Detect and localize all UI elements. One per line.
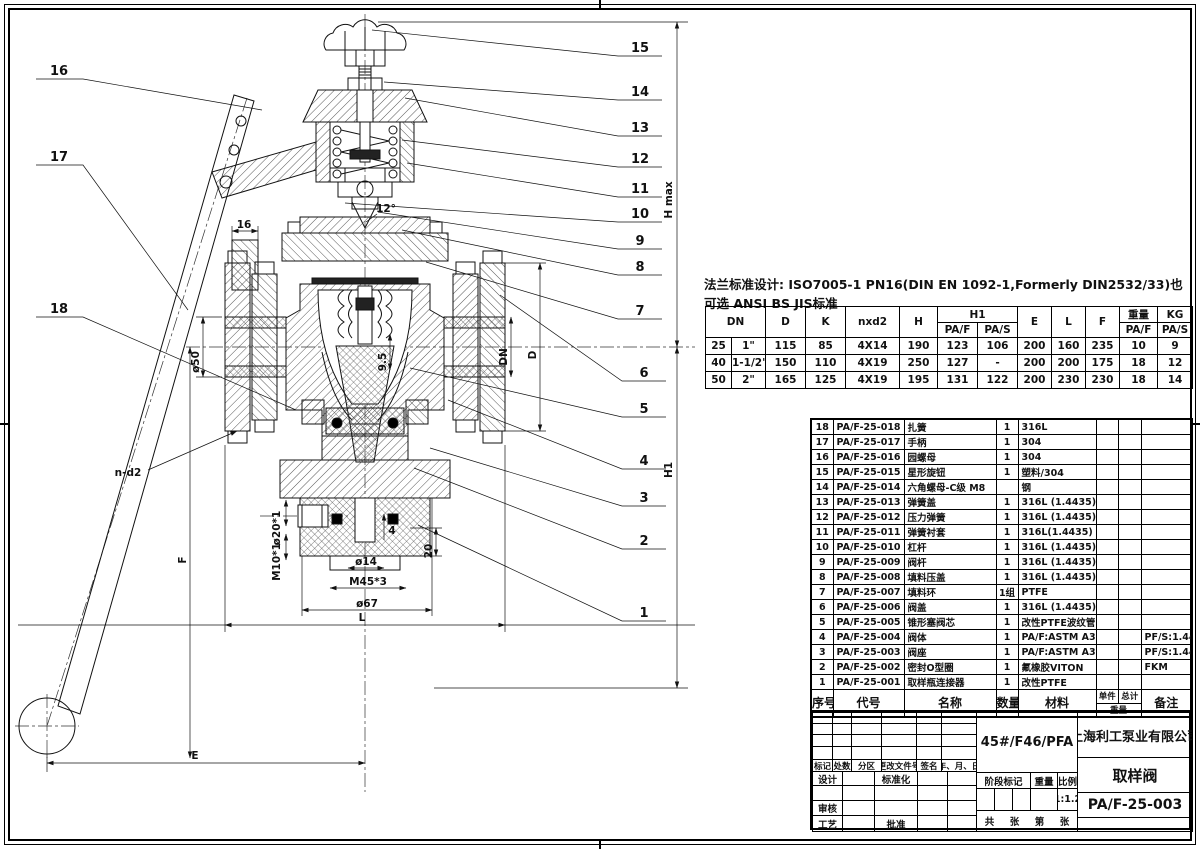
- bom-cell: 2: [811, 660, 833, 675]
- bom-row: 11PA/F-25-011弹簧衬套1316L(1.4435): [811, 525, 1192, 540]
- dim-header-w-paf: PA/F: [1120, 323, 1158, 338]
- dim-table-cell: 1-1/2": [732, 355, 766, 372]
- bom-row: 18PA/F-25-018扎簧1316L: [811, 419, 1192, 435]
- tb-label-process: 工艺: [812, 815, 843, 832]
- bom-cell: PA/F:ASTM A395/PFA: [1018, 645, 1096, 660]
- dim-table-cell: 127: [938, 355, 978, 372]
- bom-cell: 填料环: [904, 585, 996, 600]
- bom-cell: 阀体: [904, 630, 996, 645]
- bom-row: 17PA/F-25-017手柄1304: [811, 435, 1192, 450]
- dim-table-row: 251"115854X14190123106200160235109: [706, 338, 1193, 355]
- bom-cell: [1096, 525, 1118, 540]
- bom-cell: [1118, 450, 1141, 465]
- bom-cell: [1096, 435, 1118, 450]
- bom-cell: 1: [996, 645, 1018, 660]
- callout-5: 5: [639, 402, 648, 417]
- bom-cell: 316L (1.4435): [1018, 600, 1096, 615]
- dim-header-nxd2: nxd2: [846, 307, 900, 338]
- bom-cell: [1141, 525, 1192, 540]
- bom-cell: 1组: [996, 585, 1018, 600]
- bom-cell: PA/F-25-015: [833, 465, 904, 480]
- bom-cell: [1096, 600, 1118, 615]
- tb-label-weight: 重量: [1030, 772, 1058, 789]
- tb-label-design: 设计: [812, 771, 843, 786]
- dim-table-cell: 150: [766, 355, 806, 372]
- tb-product-name: 取样阀: [1077, 757, 1193, 793]
- bom-cell: [1141, 419, 1192, 435]
- bom-cell: 星形旋钮: [904, 465, 996, 480]
- bom-cell: 8: [811, 570, 833, 585]
- bom-cell: 1: [996, 465, 1018, 480]
- bom-cell: 11: [811, 525, 833, 540]
- bom-row: 2PA/F-25-002密封O型圈1氟橡胶VITONFKM: [811, 660, 1192, 675]
- bom-cell: [1096, 645, 1118, 660]
- bom-cell: [1118, 465, 1141, 480]
- bom-cell: 压力弹簧: [904, 510, 996, 525]
- bom-cell: 1: [996, 630, 1018, 645]
- tb-label-total-sheets: 共: [985, 814, 995, 828]
- bom-table: 18PA/F-25-018扎簧1316L17PA/F-25-017手柄13041…: [810, 418, 1193, 718]
- bom-cell: [1141, 510, 1192, 525]
- dim-dia20: ø20*1: [271, 511, 283, 546]
- callout-3: 3: [639, 491, 648, 506]
- bom-cell: [1118, 525, 1141, 540]
- dim-table-cell: 235: [1086, 338, 1120, 355]
- dim-table-cell: 131: [938, 372, 978, 389]
- dim-table-row: 401-1/2"1501104X19250127-2002001751812: [706, 355, 1193, 372]
- spring-cover: [303, 90, 427, 122]
- bom-cell: 阀盖: [904, 600, 996, 615]
- bom-cell: PA/F-25-010: [833, 540, 904, 555]
- tb-label-stage-mark: 阶段标记: [976, 772, 1031, 789]
- bom-cell: 316L (1.4435): [1018, 540, 1096, 555]
- bom-cell: PA/F-25-001: [833, 675, 904, 690]
- tb-company-name: 上海利工泵业有限公司: [1077, 712, 1193, 758]
- bom-cell: [1141, 450, 1192, 465]
- tb-material-spec: 45#/F46/PFA: [976, 712, 1078, 773]
- bom-cell: 阀座: [904, 645, 996, 660]
- dim-table-cell: 123: [938, 338, 978, 355]
- bom-cell: 14: [811, 480, 833, 495]
- dim-table-cell: 200: [1018, 338, 1052, 355]
- bom-cell: 1: [811, 675, 833, 690]
- bom-cell: [996, 480, 1018, 495]
- dim-dia50: ø50: [190, 351, 202, 373]
- bom-cell: PA/F:ASTM A395/PFA: [1018, 630, 1096, 645]
- bom-cell: [1096, 675, 1118, 690]
- dim-table-cell: 10: [1120, 338, 1158, 355]
- bom-cell: 园螺母: [904, 450, 996, 465]
- bom-cell: [1096, 510, 1118, 525]
- bom-cell: 1: [996, 615, 1018, 630]
- spring-housing: [316, 122, 414, 182]
- bom-cell: 15: [811, 465, 833, 480]
- bom-cell: 弹簧衬套: [904, 525, 996, 540]
- bom-cell: PA/F-25-013: [833, 495, 904, 510]
- bom-cell: 304: [1018, 435, 1096, 450]
- bellows-clamp: [312, 278, 418, 284]
- bom-cell: [1118, 600, 1141, 615]
- bom-cell: [1118, 540, 1141, 555]
- bom-cell: [1096, 615, 1118, 630]
- dim-table-cell: 115: [766, 338, 806, 355]
- dim-table-cell: 50: [706, 372, 732, 389]
- bom-cell: 钢: [1018, 480, 1096, 495]
- bom-cell: PTFE: [1018, 585, 1096, 600]
- tb-label-approve: 批准: [874, 815, 918, 832]
- bom-cell: 锥形塞阀芯: [904, 615, 996, 630]
- bom-cell: 六角螺母-C级 M8: [904, 480, 996, 495]
- bom-row: 8PA/F-25-008填料压盖1316L (1.4435): [811, 570, 1192, 585]
- callout-4: 4: [639, 454, 648, 469]
- bom-cell: 1: [996, 495, 1018, 510]
- dim-table-cell: 18: [1120, 355, 1158, 372]
- dim-table-cell: 12: [1158, 355, 1193, 372]
- bom-cell: 316L: [1018, 419, 1096, 435]
- bom-cell: 密封O型圈: [904, 660, 996, 675]
- dim-16: 16: [237, 219, 252, 231]
- bom-cell: PA/F-25-016: [833, 450, 904, 465]
- tb-label-sheet-no: 第: [1035, 814, 1045, 828]
- dim-dn: DN: [498, 348, 510, 366]
- dim-f: F: [177, 556, 189, 563]
- bom-row: 7PA/F-25-007填料环1组PTFE: [811, 585, 1192, 600]
- bom-cell: [1118, 435, 1141, 450]
- bom-cell: 1: [996, 435, 1018, 450]
- dim-table-cell: 1": [732, 338, 766, 355]
- bom-cell: PA/F-25-011: [833, 525, 904, 540]
- callout-13: 13: [631, 121, 649, 136]
- callout-7: 7: [635, 304, 644, 319]
- bom-cell: [1096, 495, 1118, 510]
- bom-cell: [1141, 480, 1192, 495]
- tb-label-scale: 比例: [1057, 772, 1078, 789]
- dim-table-cell: 18: [1120, 372, 1158, 389]
- tb-label-sheet2: 张: [1060, 814, 1070, 828]
- drawing-sheet: H max H1 E F L n-d2 ø50 16 12° 9.5 DN D …: [0, 0, 1200, 849]
- bom-cell: 304: [1018, 450, 1096, 465]
- dim-table-cell: 122: [978, 372, 1018, 389]
- bom-row: 10PA/F-25-010杠杆1316L (1.4435): [811, 540, 1192, 555]
- bom-row: 13PA/F-25-013弹簧盖1316L (1.4435): [811, 495, 1192, 510]
- tb-label-sheet: 张: [1010, 814, 1020, 828]
- tb-drawing-number: PA/F-25-003: [1077, 792, 1193, 818]
- bom-cell: PA/F-25-003: [833, 645, 904, 660]
- dim-header-h: H: [900, 307, 938, 338]
- bom-cell: [1096, 540, 1118, 555]
- dim-header-kg: KG: [1158, 307, 1193, 323]
- tb-label-review: 审核: [812, 800, 843, 816]
- bom-cell: [1096, 450, 1118, 465]
- callout-17: 17: [50, 150, 68, 165]
- bom-cell: 316L (1.4435): [1018, 570, 1096, 585]
- bom-cell: 316L (1.4435): [1018, 495, 1096, 510]
- bom-cell: PA/F-25-002: [833, 660, 904, 675]
- bom-cell: 1: [996, 570, 1018, 585]
- dim-table-cell: 200: [1018, 372, 1052, 389]
- bom-row: 6PA/F-25-006阀盖1316L (1.4435): [811, 600, 1192, 615]
- dim-20: 20: [423, 544, 435, 559]
- bom-cell: 1: [996, 675, 1018, 690]
- bom-cell: [1141, 615, 1192, 630]
- bom-cell: PA/F-25-014: [833, 480, 904, 495]
- callout-1: 1: [639, 606, 648, 621]
- dim-table-cell: 4X14: [846, 338, 900, 355]
- bom-row: 3PA/F-25-003阀座1PA/F:ASTM A395/PFAPF/S:1.…: [811, 645, 1192, 660]
- bom-cell: [1118, 630, 1141, 645]
- dim-d: D: [527, 350, 539, 359]
- bom-cell: [1096, 465, 1118, 480]
- dim-table-cell: 195: [900, 372, 938, 389]
- dim-table-cell: 106: [978, 338, 1018, 355]
- bom-cell: [1141, 435, 1192, 450]
- bom-cell: PA/F-25-017: [833, 435, 904, 450]
- bom-cell: [1096, 630, 1118, 645]
- dim-header-e: E: [1018, 307, 1052, 338]
- bom-cell: 1: [996, 510, 1018, 525]
- dim-hmax: H max: [663, 181, 675, 218]
- dim-table-cell: 230: [1086, 372, 1120, 389]
- bom-cell: 9: [811, 555, 833, 570]
- bom-cell: 1: [996, 525, 1018, 540]
- bonnet: [282, 217, 448, 261]
- bom-cell: [1118, 645, 1141, 660]
- dim-m45: M45*3: [349, 576, 387, 588]
- dim-header-k: K: [806, 307, 846, 338]
- dim-table-cell: 175: [1086, 355, 1120, 372]
- callout-8: 8: [635, 260, 644, 275]
- dim-table-cell: 2": [732, 372, 766, 389]
- bom-cell: 1: [996, 555, 1018, 570]
- bom-cell: PA/F-25-008: [833, 570, 904, 585]
- dim-table-cell: 250: [900, 355, 938, 372]
- bom-cell: [1141, 600, 1192, 615]
- dim-dia14: ø14: [355, 556, 377, 568]
- bom-cell: [1118, 615, 1141, 630]
- bom-cell: PA/F-25-018: [833, 419, 904, 435]
- dim-header-f: F: [1086, 307, 1120, 338]
- tb-scale-value: 1:1.2: [1057, 788, 1078, 811]
- dim-table-cell: 200: [1018, 355, 1052, 372]
- bom-cell: PF/S:1.4435: [1141, 630, 1192, 645]
- lever-handle: [19, 95, 254, 754]
- dim-table-cell: 14: [1158, 372, 1193, 389]
- bom-cell: [1141, 570, 1192, 585]
- dim-table-cell: 165: [766, 372, 806, 389]
- bom-cell: [1096, 660, 1118, 675]
- dim-95: 9.5: [377, 353, 389, 372]
- dim-header-weight: 重量: [1120, 307, 1158, 323]
- dim-dia67: ø67: [356, 598, 378, 610]
- bom-cell: FKM: [1141, 660, 1192, 675]
- dim-header-h1-pas: PA/S: [978, 323, 1018, 338]
- bom-header-unit: 单件: [1097, 690, 1119, 703]
- dim-l: L: [359, 612, 366, 624]
- bom-cell: 手柄: [904, 435, 996, 450]
- bom-cell: 316L(1.4435): [1018, 525, 1096, 540]
- dim-m10: M10*1: [271, 543, 283, 581]
- dim-h1: H1: [663, 462, 675, 478]
- bom-cell: [1118, 675, 1141, 690]
- bom-cell: 3: [811, 645, 833, 660]
- dim-table-cell: 190: [900, 338, 938, 355]
- callout-11: 11: [631, 182, 649, 197]
- bom-cell: [1141, 555, 1192, 570]
- bom-cell: [1118, 555, 1141, 570]
- bom-cell: PA/F-25-006: [833, 600, 904, 615]
- bom-cell: 1: [996, 419, 1018, 435]
- dim-table-row: 502"1651254X191951311222002302301814: [706, 372, 1193, 389]
- bom-cell: PA/F-25-005: [833, 615, 904, 630]
- dim-nd2: n-d2: [115, 467, 142, 479]
- bom-cell: 5: [811, 615, 833, 630]
- dim-table-cell: 25: [706, 338, 732, 355]
- dim-e: E: [191, 750, 198, 762]
- bom-cell: 1: [996, 660, 1018, 675]
- bom-cell: [1141, 675, 1192, 690]
- bom-row: 16PA/F-25-016园螺母1304: [811, 450, 1192, 465]
- dim-table-cell: 4X19: [846, 355, 900, 372]
- bom-cell: PA/F-25-012: [833, 510, 904, 525]
- callout-9: 9: [635, 234, 644, 249]
- dim-table-cell: 40: [706, 355, 732, 372]
- dim-table-cell: 125: [806, 372, 846, 389]
- bom-cell: 13: [811, 495, 833, 510]
- bom-header-total: 总计: [1119, 690, 1141, 703]
- bom-cell: 阀杆: [904, 555, 996, 570]
- bom-cell: 12: [811, 510, 833, 525]
- bom-cell: 7: [811, 585, 833, 600]
- dim-table-cell: -: [978, 355, 1018, 372]
- bom-cell: 填料压盖: [904, 570, 996, 585]
- dim-header-l: L: [1052, 307, 1086, 338]
- dim-table-cell: 4X19: [846, 372, 900, 389]
- bom-row: 1PA/F-25-001取样瓶连接器1改性PTFE: [811, 675, 1192, 690]
- bom-row: 4PA/F-25-004阀体1PA/F:ASTM A395/PFAPF/S:1.…: [811, 630, 1192, 645]
- dim-4: 4: [388, 525, 395, 537]
- bom-cell: 杠杆: [904, 540, 996, 555]
- bom-cell: 1: [996, 450, 1018, 465]
- bom-cell: PA/F-25-009: [833, 555, 904, 570]
- bom-cell: [1118, 570, 1141, 585]
- bom-cell: 316L (1.4435): [1018, 555, 1096, 570]
- dim-header-w-pas: PA/S: [1158, 323, 1193, 338]
- bom-row: 9PA/F-25-009阀杆1316L (1.4435): [811, 555, 1192, 570]
- bom-cell: 氟橡胶VITON: [1018, 660, 1096, 675]
- tb-label-standardize: 标准化: [874, 771, 918, 786]
- dim-table-cell: 200: [1052, 355, 1086, 372]
- bom-cell: 316L (1.4435): [1018, 510, 1096, 525]
- bom-cell: PA/F-25-004: [833, 630, 904, 645]
- bom-cell: 16: [811, 450, 833, 465]
- bom-cell: PA/F-25-007: [833, 585, 904, 600]
- dim-header-h1: H1: [938, 307, 1018, 323]
- bom-cell: [1118, 419, 1141, 435]
- bom-cell: [1096, 585, 1118, 600]
- dimension-table: DN D K nxd2 H H1 E L F 重量 KG PA/F PA/S P…: [705, 306, 1193, 389]
- callout-14: 14: [631, 85, 649, 100]
- bom-cell: [1118, 585, 1141, 600]
- bom-cell: 扎簧: [904, 419, 996, 435]
- dim-table-cell: 230: [1052, 372, 1086, 389]
- callout-6: 6: [639, 366, 648, 381]
- callout-15: 15: [631, 41, 649, 56]
- bom-row: 12PA/F-25-012压力弹簧1316L (1.4435): [811, 510, 1192, 525]
- callout-18: 18: [50, 302, 68, 317]
- bom-cell: 6: [811, 600, 833, 615]
- bom-cell: 17: [811, 435, 833, 450]
- bom-cell: [1096, 555, 1118, 570]
- title-block: 标记 处数 分区 更改文件号 签名 年、月、日 设计 标准化 审核 工艺 批准 …: [810, 710, 1191, 830]
- bom-cell: 塑料/304: [1018, 465, 1096, 480]
- bom-cell: [1141, 465, 1192, 480]
- bom-cell: [1141, 495, 1192, 510]
- callout-12: 12: [631, 152, 649, 167]
- bom-cell: 4: [811, 630, 833, 645]
- bom-row: 5PA/F-25-005锥形塞阀芯1改性PTFE波纹管: [811, 615, 1192, 630]
- bom-cell: 取样瓶连接器: [904, 675, 996, 690]
- bom-cell: 改性PTFE波纹管: [1018, 615, 1096, 630]
- bom-cell: 弹簧盖: [904, 495, 996, 510]
- dim-table-cell: 9: [1158, 338, 1193, 355]
- bom-cell: 1: [996, 540, 1018, 555]
- bom-cell: [1118, 480, 1141, 495]
- bom-cell: PF/S:1.4435: [1141, 645, 1192, 660]
- bom-cell: 10: [811, 540, 833, 555]
- bom-cell: [1096, 419, 1118, 435]
- bom-row: 15PA/F-25-015星形旋钮1塑料/304: [811, 465, 1192, 480]
- bom-cell: 1: [996, 600, 1018, 615]
- bom-cell: [1096, 480, 1118, 495]
- bom-cell: 改性PTFE: [1018, 675, 1096, 690]
- bom-cell: 18: [811, 419, 833, 435]
- dim-table-cell: 110: [806, 355, 846, 372]
- dim-header-h1-paf: PA/F: [938, 323, 978, 338]
- bom-cell: [1118, 510, 1141, 525]
- dim-table-cell: 85: [806, 338, 846, 355]
- callout-16: 16: [50, 64, 68, 79]
- bom-row: 14PA/F-25-014六角螺母-C级 M8钢: [811, 480, 1192, 495]
- callout-10: 10: [631, 207, 649, 222]
- dim-header-dn: DN: [706, 307, 766, 338]
- dim-header-d: D: [766, 307, 806, 338]
- bom-cell: [1096, 570, 1118, 585]
- dim-table-cell: 160: [1052, 338, 1086, 355]
- bom-cell: [1118, 495, 1141, 510]
- bom-cell: [1118, 660, 1141, 675]
- bom-cell: [1141, 540, 1192, 555]
- callout-2: 2: [639, 534, 648, 549]
- bom-cell: [1141, 585, 1192, 600]
